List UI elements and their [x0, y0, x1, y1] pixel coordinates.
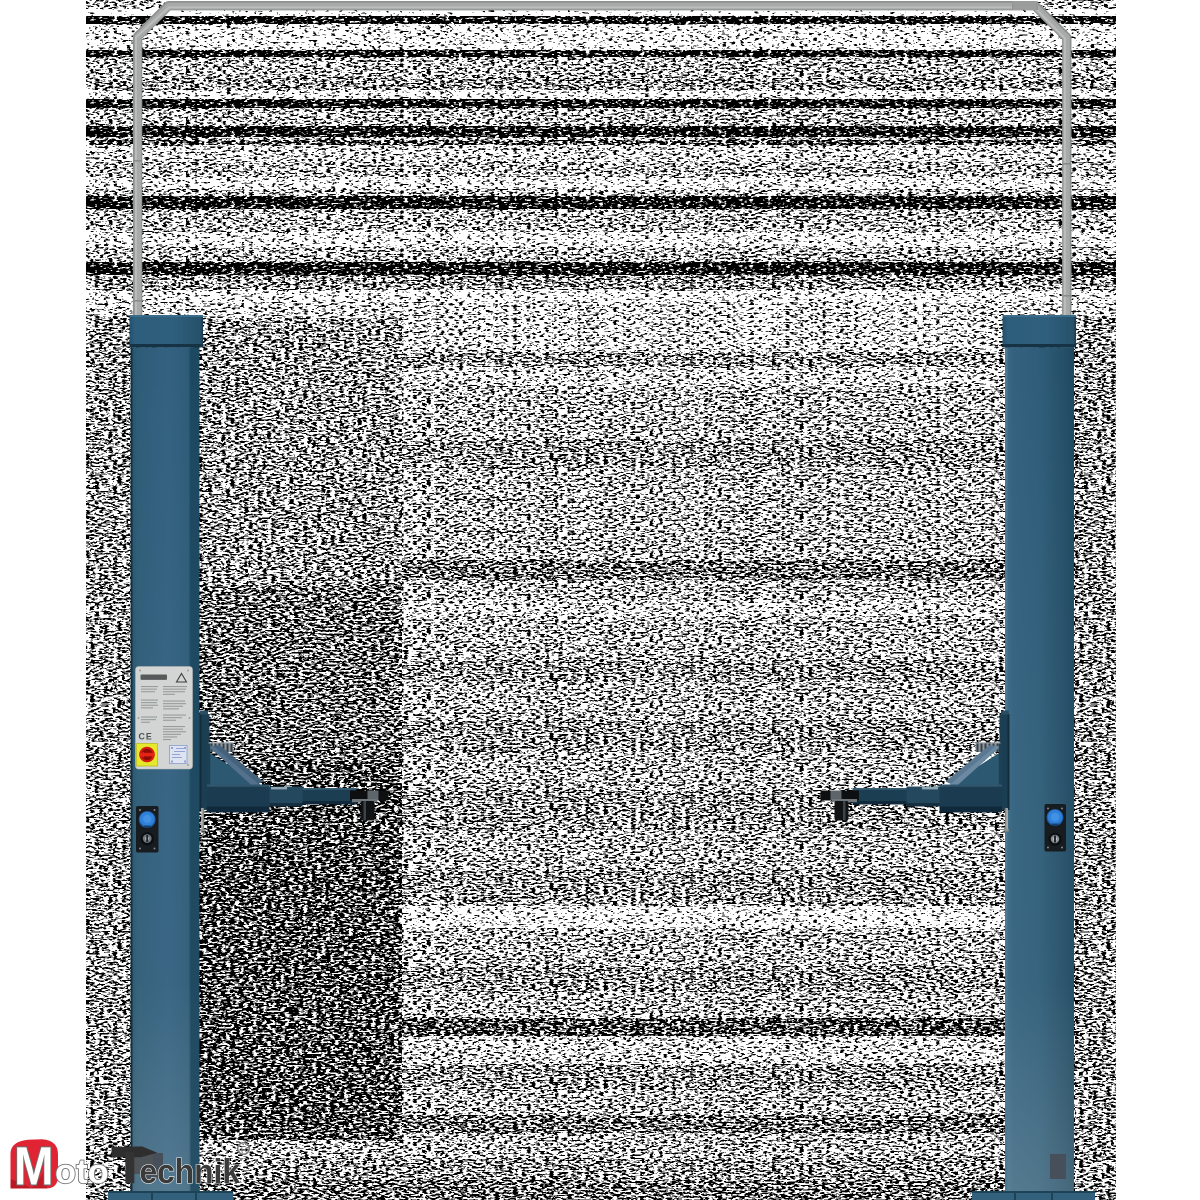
svg-text:M: M [14, 1136, 54, 1197]
svg-text:CE: CE [139, 732, 153, 742]
svg-text:R: R [241, 1145, 248, 1155]
svg-text:oto: oto [55, 1153, 109, 1191]
svg-text:echnik: echnik [140, 1153, 241, 1192]
